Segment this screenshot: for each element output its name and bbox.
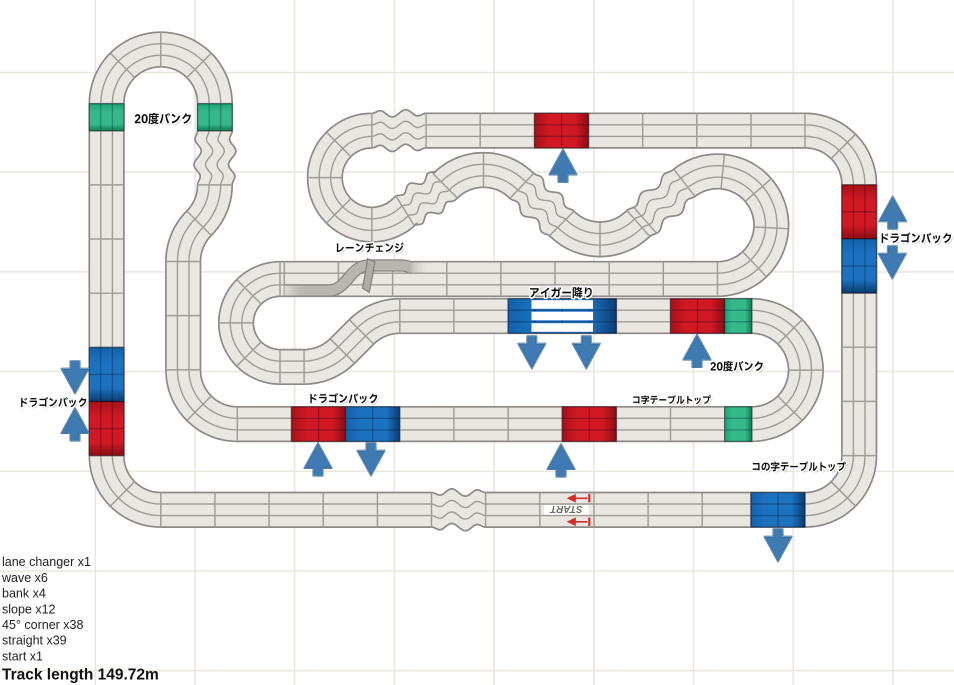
svg-text:start x1: start x1 xyxy=(2,649,43,663)
svg-text:bank x4: bank x4 xyxy=(2,587,46,601)
svg-text:lane changer x1: lane changer x1 xyxy=(2,555,91,569)
svg-text:wave x6: wave x6 xyxy=(1,571,48,585)
svg-text:Track length 149.72m: Track length 149.72m xyxy=(2,667,159,684)
svg-text:straight x39: straight x39 xyxy=(2,634,67,648)
svg-text:45° corner x38: 45° corner x38 xyxy=(2,618,83,632)
svg-text:START: START xyxy=(549,503,582,514)
svg-text:slope x12: slope x12 xyxy=(2,602,56,616)
